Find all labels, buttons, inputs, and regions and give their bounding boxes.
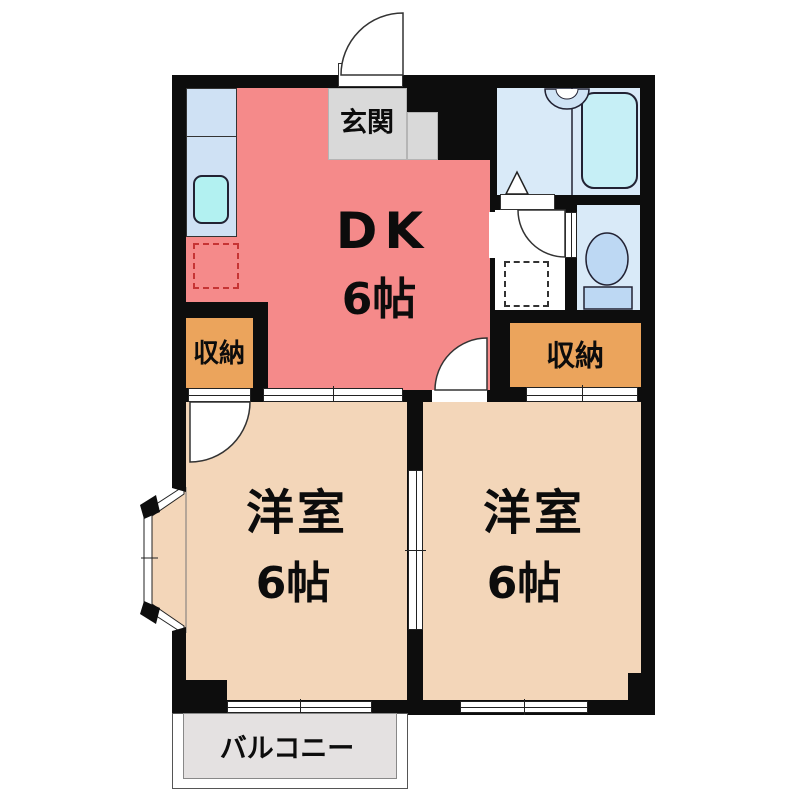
dk-label: DK bbox=[336, 206, 430, 256]
washroom-doorway bbox=[489, 212, 496, 258]
bay-window-opening bbox=[172, 487, 186, 635]
wall-block-bottom-left bbox=[186, 680, 227, 715]
dk-size-label: 6帖 bbox=[342, 278, 417, 322]
toilet-door bbox=[565, 212, 577, 258]
entry-door-threshold bbox=[338, 63, 403, 87]
western-left-label: 洋室 bbox=[246, 489, 348, 537]
closet-left-threshold bbox=[188, 388, 251, 402]
refrigerator-space bbox=[193, 243, 239, 289]
dk-room-area bbox=[268, 302, 328, 390]
wall-corner-notch bbox=[628, 673, 655, 715]
entrance-label: 玄関 bbox=[340, 110, 394, 137]
window-left-room bbox=[227, 701, 372, 713]
kitchen-counter-divider bbox=[186, 136, 237, 137]
sliding-door-dk-left-room bbox=[263, 388, 403, 402]
bath-threshold bbox=[500, 194, 555, 210]
kitchen-sink bbox=[193, 175, 229, 224]
western-room-left bbox=[186, 402, 407, 700]
room-partition-sliding-door bbox=[408, 470, 423, 630]
closet-right-label: 収納 bbox=[546, 342, 604, 371]
dk-room-area bbox=[237, 88, 328, 302]
western-room-right bbox=[423, 402, 641, 700]
closet-right-window bbox=[526, 387, 638, 402]
closet-left-label: 収納 bbox=[193, 341, 245, 367]
floor-plan: 玄関 DK 6帖 収納 収納 洋室 6帖 洋室 6帖 バルコニー bbox=[0, 0, 800, 800]
washing-machine-space bbox=[504, 261, 549, 307]
western-right-label: 洋室 bbox=[483, 489, 585, 537]
entrance-step bbox=[407, 112, 438, 160]
bathroom bbox=[497, 88, 640, 195]
toilet-room bbox=[577, 205, 640, 310]
western-left-size-label: 6帖 bbox=[256, 562, 331, 606]
balcony-label: バルコニー bbox=[220, 736, 354, 763]
western-right-size-label: 6帖 bbox=[487, 562, 562, 606]
window-right-room bbox=[460, 701, 588, 713]
